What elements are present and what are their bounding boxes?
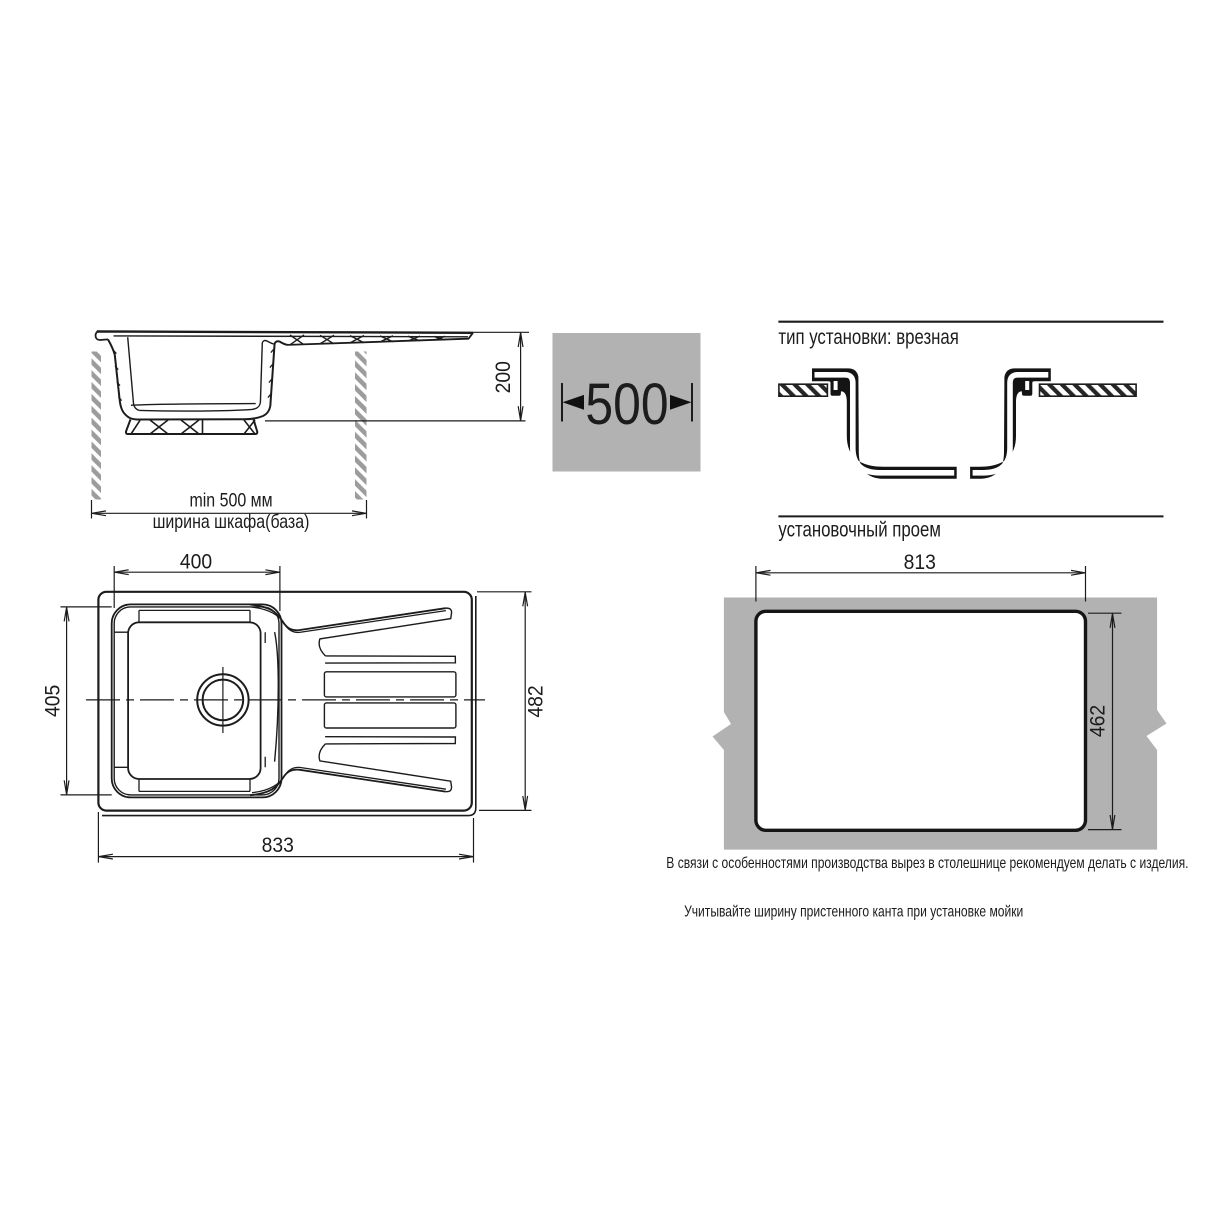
svg-text:462: 462 [1086,705,1110,737]
svg-text:833: 833 [262,833,294,857]
svg-text:813: 813 [904,550,936,574]
svg-text:тип установки: врезная: тип установки: врезная [778,327,958,350]
svg-text:405: 405 [41,685,65,717]
svg-text:482: 482 [524,685,548,717]
svg-text:200: 200 [491,361,515,393]
svg-text:установочный проем: установочный проем [778,519,941,542]
svg-text:В связи с особенностями произв: В связи с особенностями производства выр… [666,853,1188,871]
svg-text:ширина шкафа(база): ширина шкафа(база) [153,511,310,533]
svg-text:500: 500 [585,373,668,437]
svg-text:400: 400 [180,550,212,574]
svg-text:min 500 мм: min 500 мм [189,489,272,511]
svg-text:Учитывайте ширину пристенного: Учитывайте ширину пристенного канта при … [684,902,1023,920]
